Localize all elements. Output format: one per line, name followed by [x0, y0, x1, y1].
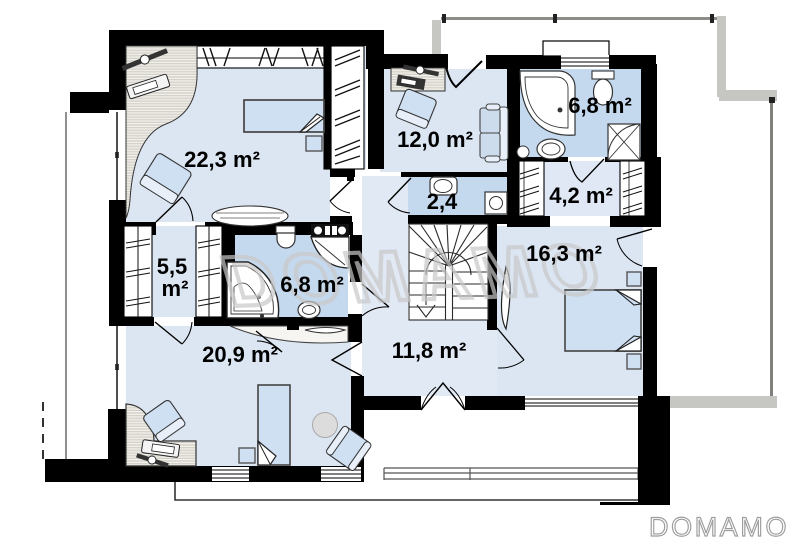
svg-text:20,9 m²: 20,9 m²	[202, 342, 278, 367]
svg-text:16,3 m²: 16,3 m²	[526, 241, 602, 266]
svg-text:DOMAMO: DOMAMO	[649, 512, 789, 542]
svg-text:2,4: 2,4	[427, 189, 458, 214]
svg-text:m²: m²	[162, 276, 189, 301]
svg-text:4,2 m²: 4,2 m²	[549, 183, 613, 208]
svg-text:6,8 m²: 6,8 m²	[280, 272, 344, 297]
svg-text:22,3 m²: 22,3 m²	[184, 147, 260, 172]
svg-text:11,8 m²: 11,8 m²	[392, 338, 467, 363]
svg-text:6,8 m²: 6,8 m²	[568, 93, 632, 118]
svg-text:12,0 m²: 12,0 m²	[397, 127, 473, 152]
